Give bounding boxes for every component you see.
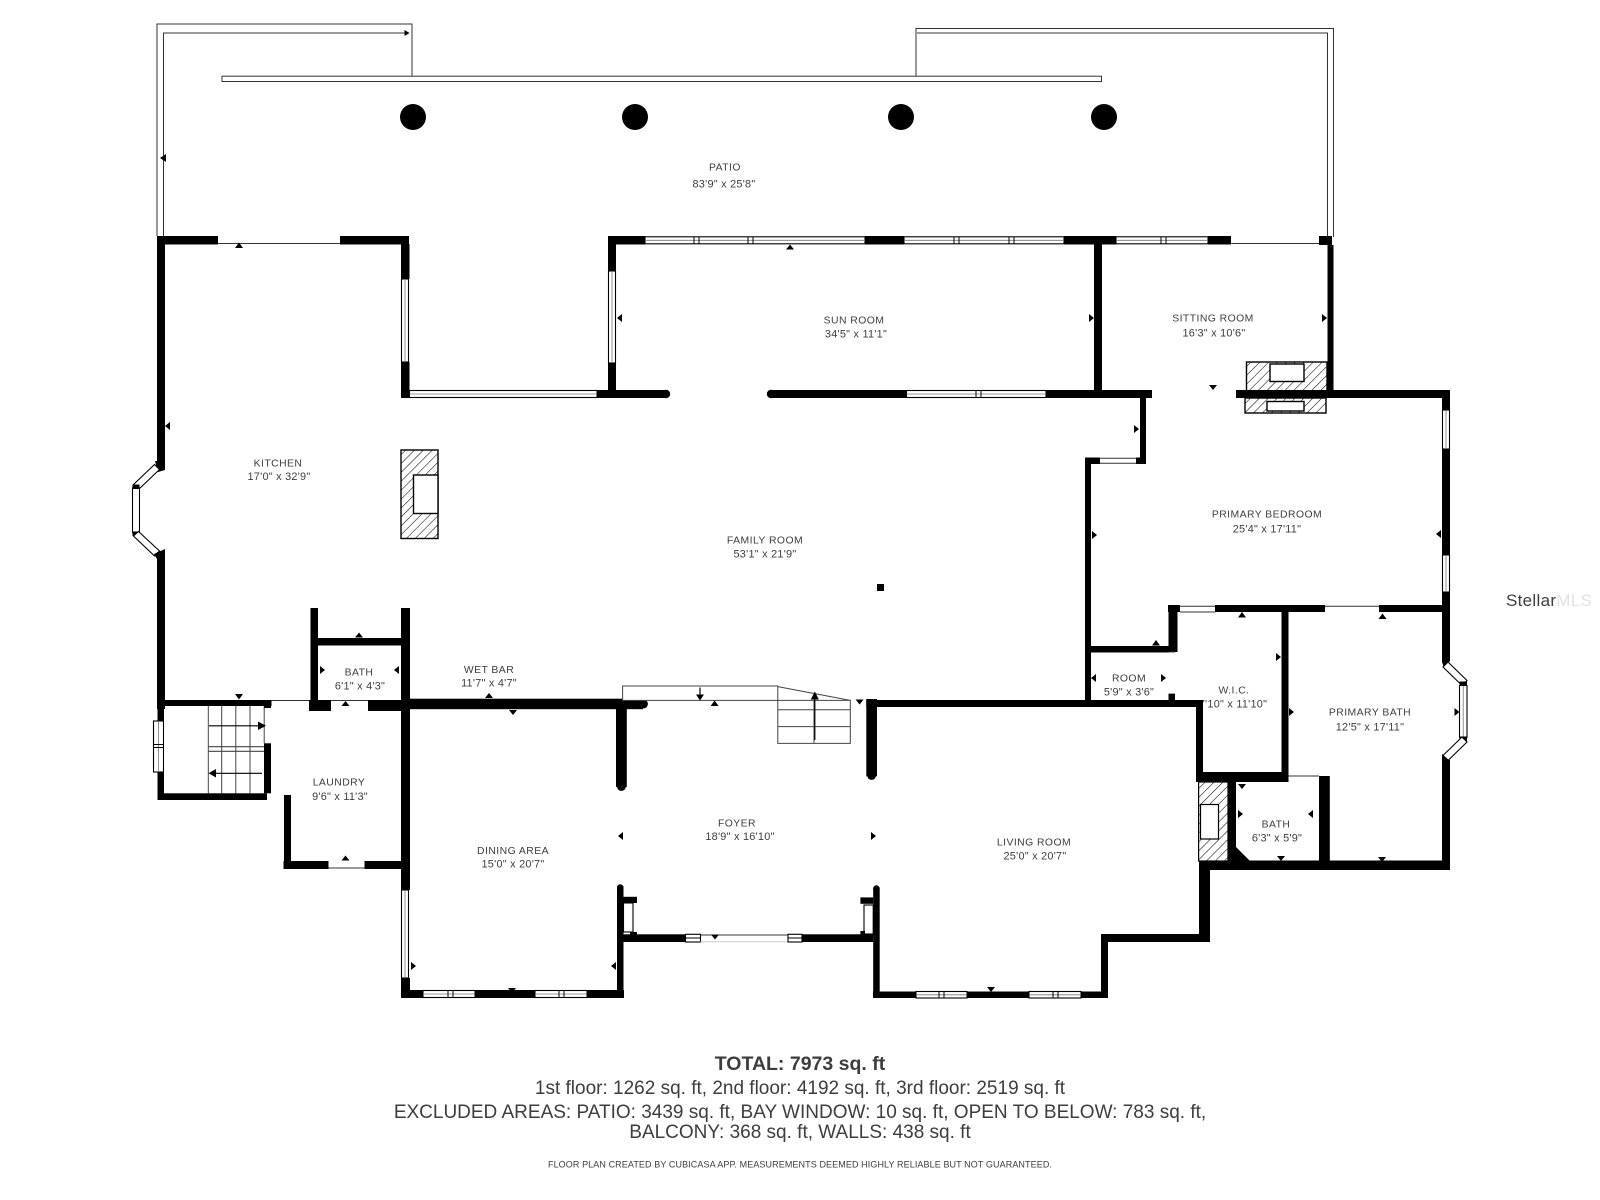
svg-text:LIVING ROOM: LIVING ROOM xyxy=(997,838,1071,849)
svg-text:6'3" x 5'9": 6'3" x 5'9" xyxy=(1252,833,1302,845)
svg-text:83'9" x 25'8": 83'9" x 25'8" xyxy=(693,179,756,191)
svg-text:LAUNDRY: LAUNDRY xyxy=(313,778,366,789)
svg-text:11'7" x 4'7": 11'7" x 4'7" xyxy=(461,678,517,690)
svg-text:7'10" x 11'10": 7'10" x 11'10" xyxy=(1199,699,1267,711)
svg-text:TOTAL: 7973 sq. ft: TOTAL: 7973 sq. ft xyxy=(715,1053,886,1075)
svg-text:5'9" x 3'6": 5'9" x 3'6" xyxy=(1104,687,1154,699)
svg-text:PRIMARY BATH: PRIMARY BATH xyxy=(1329,708,1411,719)
svg-text:6'1" x 4'3": 6'1" x 4'3" xyxy=(335,681,385,693)
svg-text:EXCLUDED AREAS: PATIO: 3439 sq: EXCLUDED AREAS: PATIO: 3439 sq. ft, BAY … xyxy=(394,1102,1206,1123)
svg-text:WET BAR: WET BAR xyxy=(464,665,514,676)
svg-text:SITTING ROOM: SITTING ROOM xyxy=(1172,314,1254,325)
svg-text:18'9" x 16'10": 18'9" x 16'10" xyxy=(705,831,774,843)
svg-text:PRIMARY BEDROOM: PRIMARY BEDROOM xyxy=(1212,510,1322,521)
svg-text:BALCONY: 368 sq. ft, WALLS: 43: BALCONY: 368 sq. ft, WALLS: 438 sq. ft xyxy=(629,1122,971,1143)
svg-text:KITCHEN: KITCHEN xyxy=(254,459,303,470)
svg-text:FAMILY ROOM: FAMILY ROOM xyxy=(727,536,803,547)
svg-text:16'3" x 10'6": 16'3" x 10'6" xyxy=(1183,328,1246,340)
svg-text:StellarMLS: StellarMLS xyxy=(1506,591,1592,610)
svg-text:ROOM: ROOM xyxy=(1112,674,1146,685)
svg-text:15'0" x 20'7": 15'0" x 20'7" xyxy=(482,859,545,871)
svg-text:W.I.C.: W.I.C. xyxy=(1219,686,1250,697)
svg-text:53'1" x 21'9": 53'1" x 21'9" xyxy=(734,549,797,561)
svg-text:SUN ROOM: SUN ROOM xyxy=(824,316,885,327)
svg-text:25'0" x 20'7": 25'0" x 20'7" xyxy=(1004,851,1067,863)
svg-text:FOYER: FOYER xyxy=(718,819,756,830)
svg-text:FLOOR PLAN CREATED BY CUBICASA: FLOOR PLAN CREATED BY CUBICASA APP. MEAS… xyxy=(548,1160,1052,1170)
svg-text:12'5" x 17'11": 12'5" x 17'11" xyxy=(1336,722,1404,734)
svg-text:34'5" x 11'1": 34'5" x 11'1" xyxy=(825,329,887,341)
svg-text:9'6" x 11'3": 9'6" x 11'3" xyxy=(312,791,368,803)
svg-text:DINING AREA: DINING AREA xyxy=(477,846,549,857)
svg-text:17'0" x 32'9": 17'0" x 32'9" xyxy=(248,471,311,483)
svg-text:BATH: BATH xyxy=(1262,820,1291,831)
svg-text:BATH: BATH xyxy=(345,668,374,679)
svg-text:PATIO: PATIO xyxy=(709,163,741,174)
svg-text:25'4" x 17'11": 25'4" x 17'11" xyxy=(1233,524,1301,536)
svg-text:1st floor: 1262 sq. ft, 2nd fl: 1st floor: 1262 sq. ft, 2nd floor: 4192 … xyxy=(535,1078,1066,1099)
